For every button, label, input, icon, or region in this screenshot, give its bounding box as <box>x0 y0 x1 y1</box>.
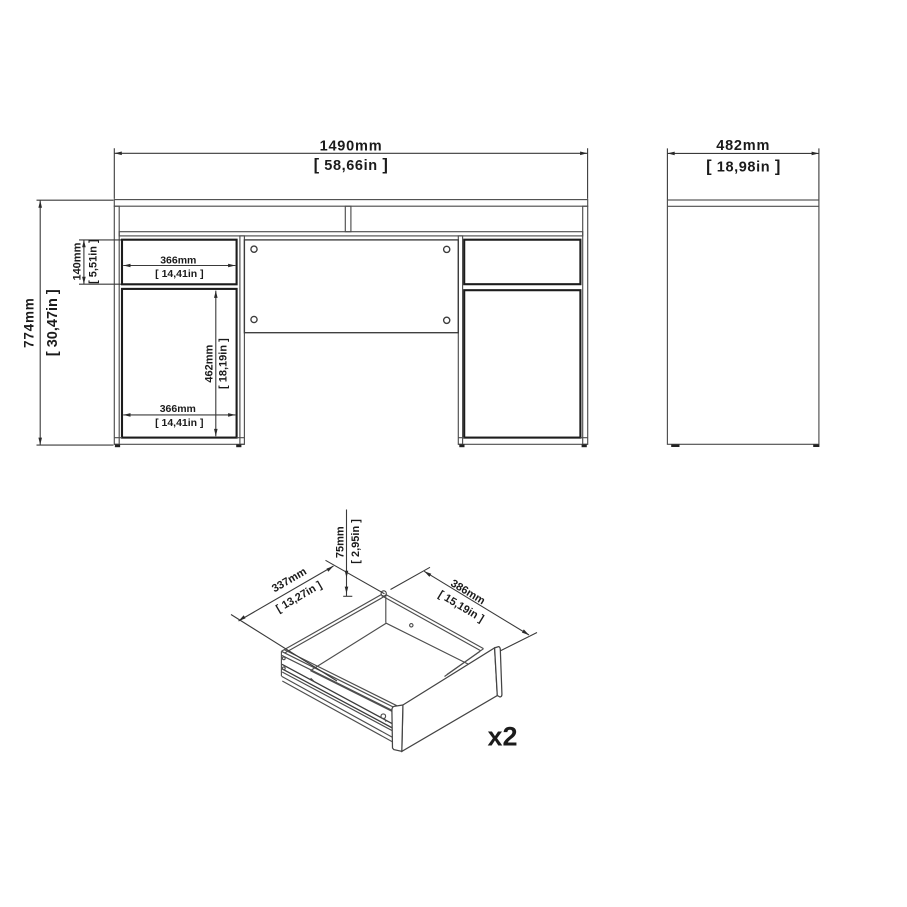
svg-text:[ 18,98in ]: [ 18,98in ] <box>706 158 781 176</box>
svg-text:366mm: 366mm <box>160 254 196 266</box>
svg-text:366mm: 366mm <box>160 403 196 415</box>
svg-text:140mm: 140mm <box>72 242 84 280</box>
svg-text:[ 14,41in ]: [ 14,41in ] <box>155 417 203 429</box>
svg-text:x2: x2 <box>487 722 517 752</box>
svg-text:[ 30,47in ]: [ 30,47in ] <box>45 289 61 356</box>
svg-text:[ 5,51in ]: [ 5,51in ] <box>88 239 100 284</box>
svg-text:[ 14,41in ]: [ 14,41in ] <box>155 268 203 280</box>
svg-text:[ 58,66in ]: [ 58,66in ] <box>314 156 389 174</box>
svg-text:1490mm: 1490mm <box>320 138 383 154</box>
svg-text:482mm: 482mm <box>716 138 770 154</box>
svg-text:462mm: 462mm <box>203 345 215 383</box>
svg-text:75mm: 75mm <box>334 526 346 558</box>
svg-text:774mm: 774mm <box>22 297 37 348</box>
svg-text:[ 18,19in ]: [ 18,19in ] <box>217 338 229 389</box>
svg-text:[ 2,95in ]: [ 2,95in ] <box>350 519 362 564</box>
